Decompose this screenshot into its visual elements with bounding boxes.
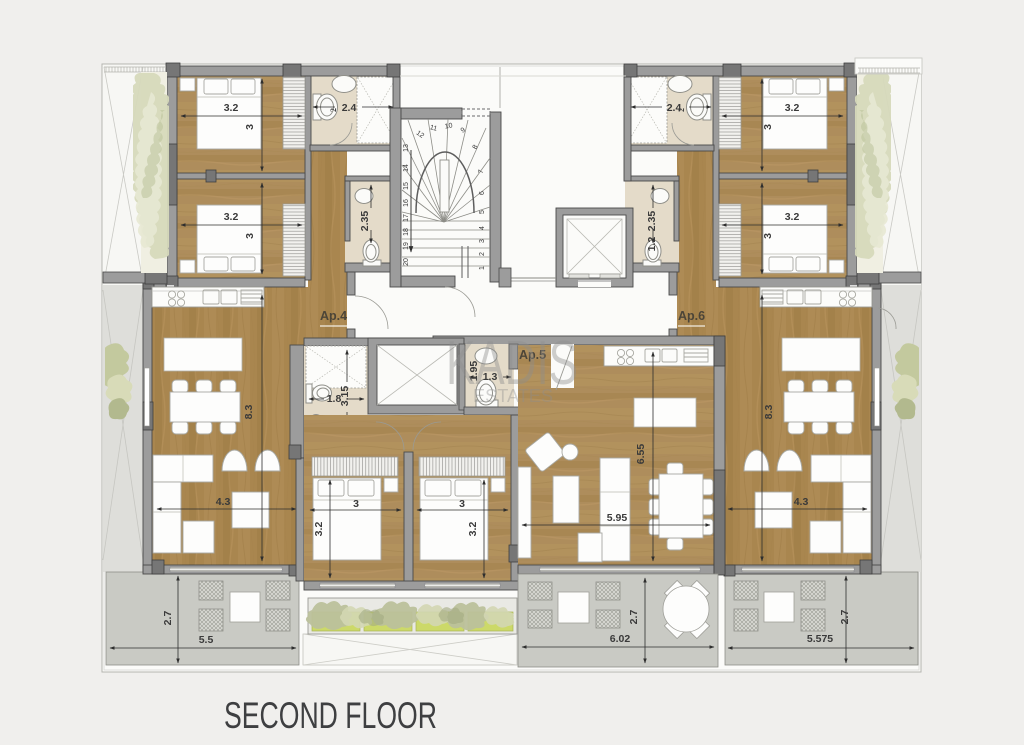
svg-text:Ap.6: Ap.6 xyxy=(678,309,705,323)
svg-text:4.3: 4.3 xyxy=(794,496,809,508)
svg-text:3.2: 3.2 xyxy=(224,211,239,223)
svg-text:3: 3 xyxy=(353,498,359,510)
svg-text:Ap.4: Ap.4 xyxy=(320,309,347,323)
svg-text:5.95: 5.95 xyxy=(607,512,628,524)
svg-text:3: 3 xyxy=(479,239,486,243)
svg-text:20: 20 xyxy=(403,258,410,266)
svg-text:3.2: 3.2 xyxy=(785,211,800,223)
svg-text:14: 14 xyxy=(403,164,410,172)
svg-text:1: 1 xyxy=(479,266,486,270)
svg-text:5: 5 xyxy=(479,210,486,214)
svg-text:2.7: 2.7 xyxy=(839,610,851,625)
svg-text:3.2: 3.2 xyxy=(313,522,325,537)
svg-text:17: 17 xyxy=(403,214,410,222)
svg-text:3: 3 xyxy=(762,124,774,130)
svg-text:13: 13 xyxy=(403,144,410,152)
svg-text:16: 16 xyxy=(403,199,410,207)
svg-text:2: 2 xyxy=(479,252,486,256)
svg-text:18: 18 xyxy=(403,228,410,236)
svg-text:3.2: 3.2 xyxy=(467,522,479,537)
svg-text:5.575: 5.575 xyxy=(807,633,833,645)
svg-text:3: 3 xyxy=(459,498,465,510)
svg-text:2.7: 2.7 xyxy=(162,611,174,626)
svg-text:8.3: 8.3 xyxy=(243,405,255,420)
svg-text:2.4: 2.4 xyxy=(342,102,357,114)
svg-text:2.35: 2.35 xyxy=(359,211,371,232)
svg-text:2: 2 xyxy=(677,108,686,112)
svg-text:5.5: 5.5 xyxy=(199,634,214,646)
svg-text:2.35: 2.35 xyxy=(646,211,658,232)
svg-text:15: 15 xyxy=(403,182,410,190)
svg-text:3: 3 xyxy=(244,233,256,239)
svg-text:ESTATES: ESTATES xyxy=(473,386,553,406)
svg-text:SECOND FLOOR: SECOND FLOOR xyxy=(224,695,437,736)
svg-text:2: 2 xyxy=(329,108,338,112)
svg-text:3: 3 xyxy=(244,124,256,130)
svg-text:8.3: 8.3 xyxy=(763,405,775,420)
svg-text:3: 3 xyxy=(762,233,774,239)
svg-text:10: 10 xyxy=(444,122,453,130)
svg-text:6.55: 6.55 xyxy=(635,444,647,465)
svg-text:1.2: 1.2 xyxy=(646,237,658,252)
svg-text:4.3: 4.3 xyxy=(216,496,231,508)
svg-text:19: 19 xyxy=(403,242,410,250)
svg-text:3.2: 3.2 xyxy=(785,102,800,114)
svg-text:4: 4 xyxy=(479,226,486,230)
svg-text:3.2: 3.2 xyxy=(224,102,239,114)
svg-text:6: 6 xyxy=(479,191,486,195)
svg-text:6.02: 6.02 xyxy=(610,633,631,645)
svg-text:3.15: 3.15 xyxy=(339,386,351,407)
svg-text:2.7: 2.7 xyxy=(628,610,640,625)
